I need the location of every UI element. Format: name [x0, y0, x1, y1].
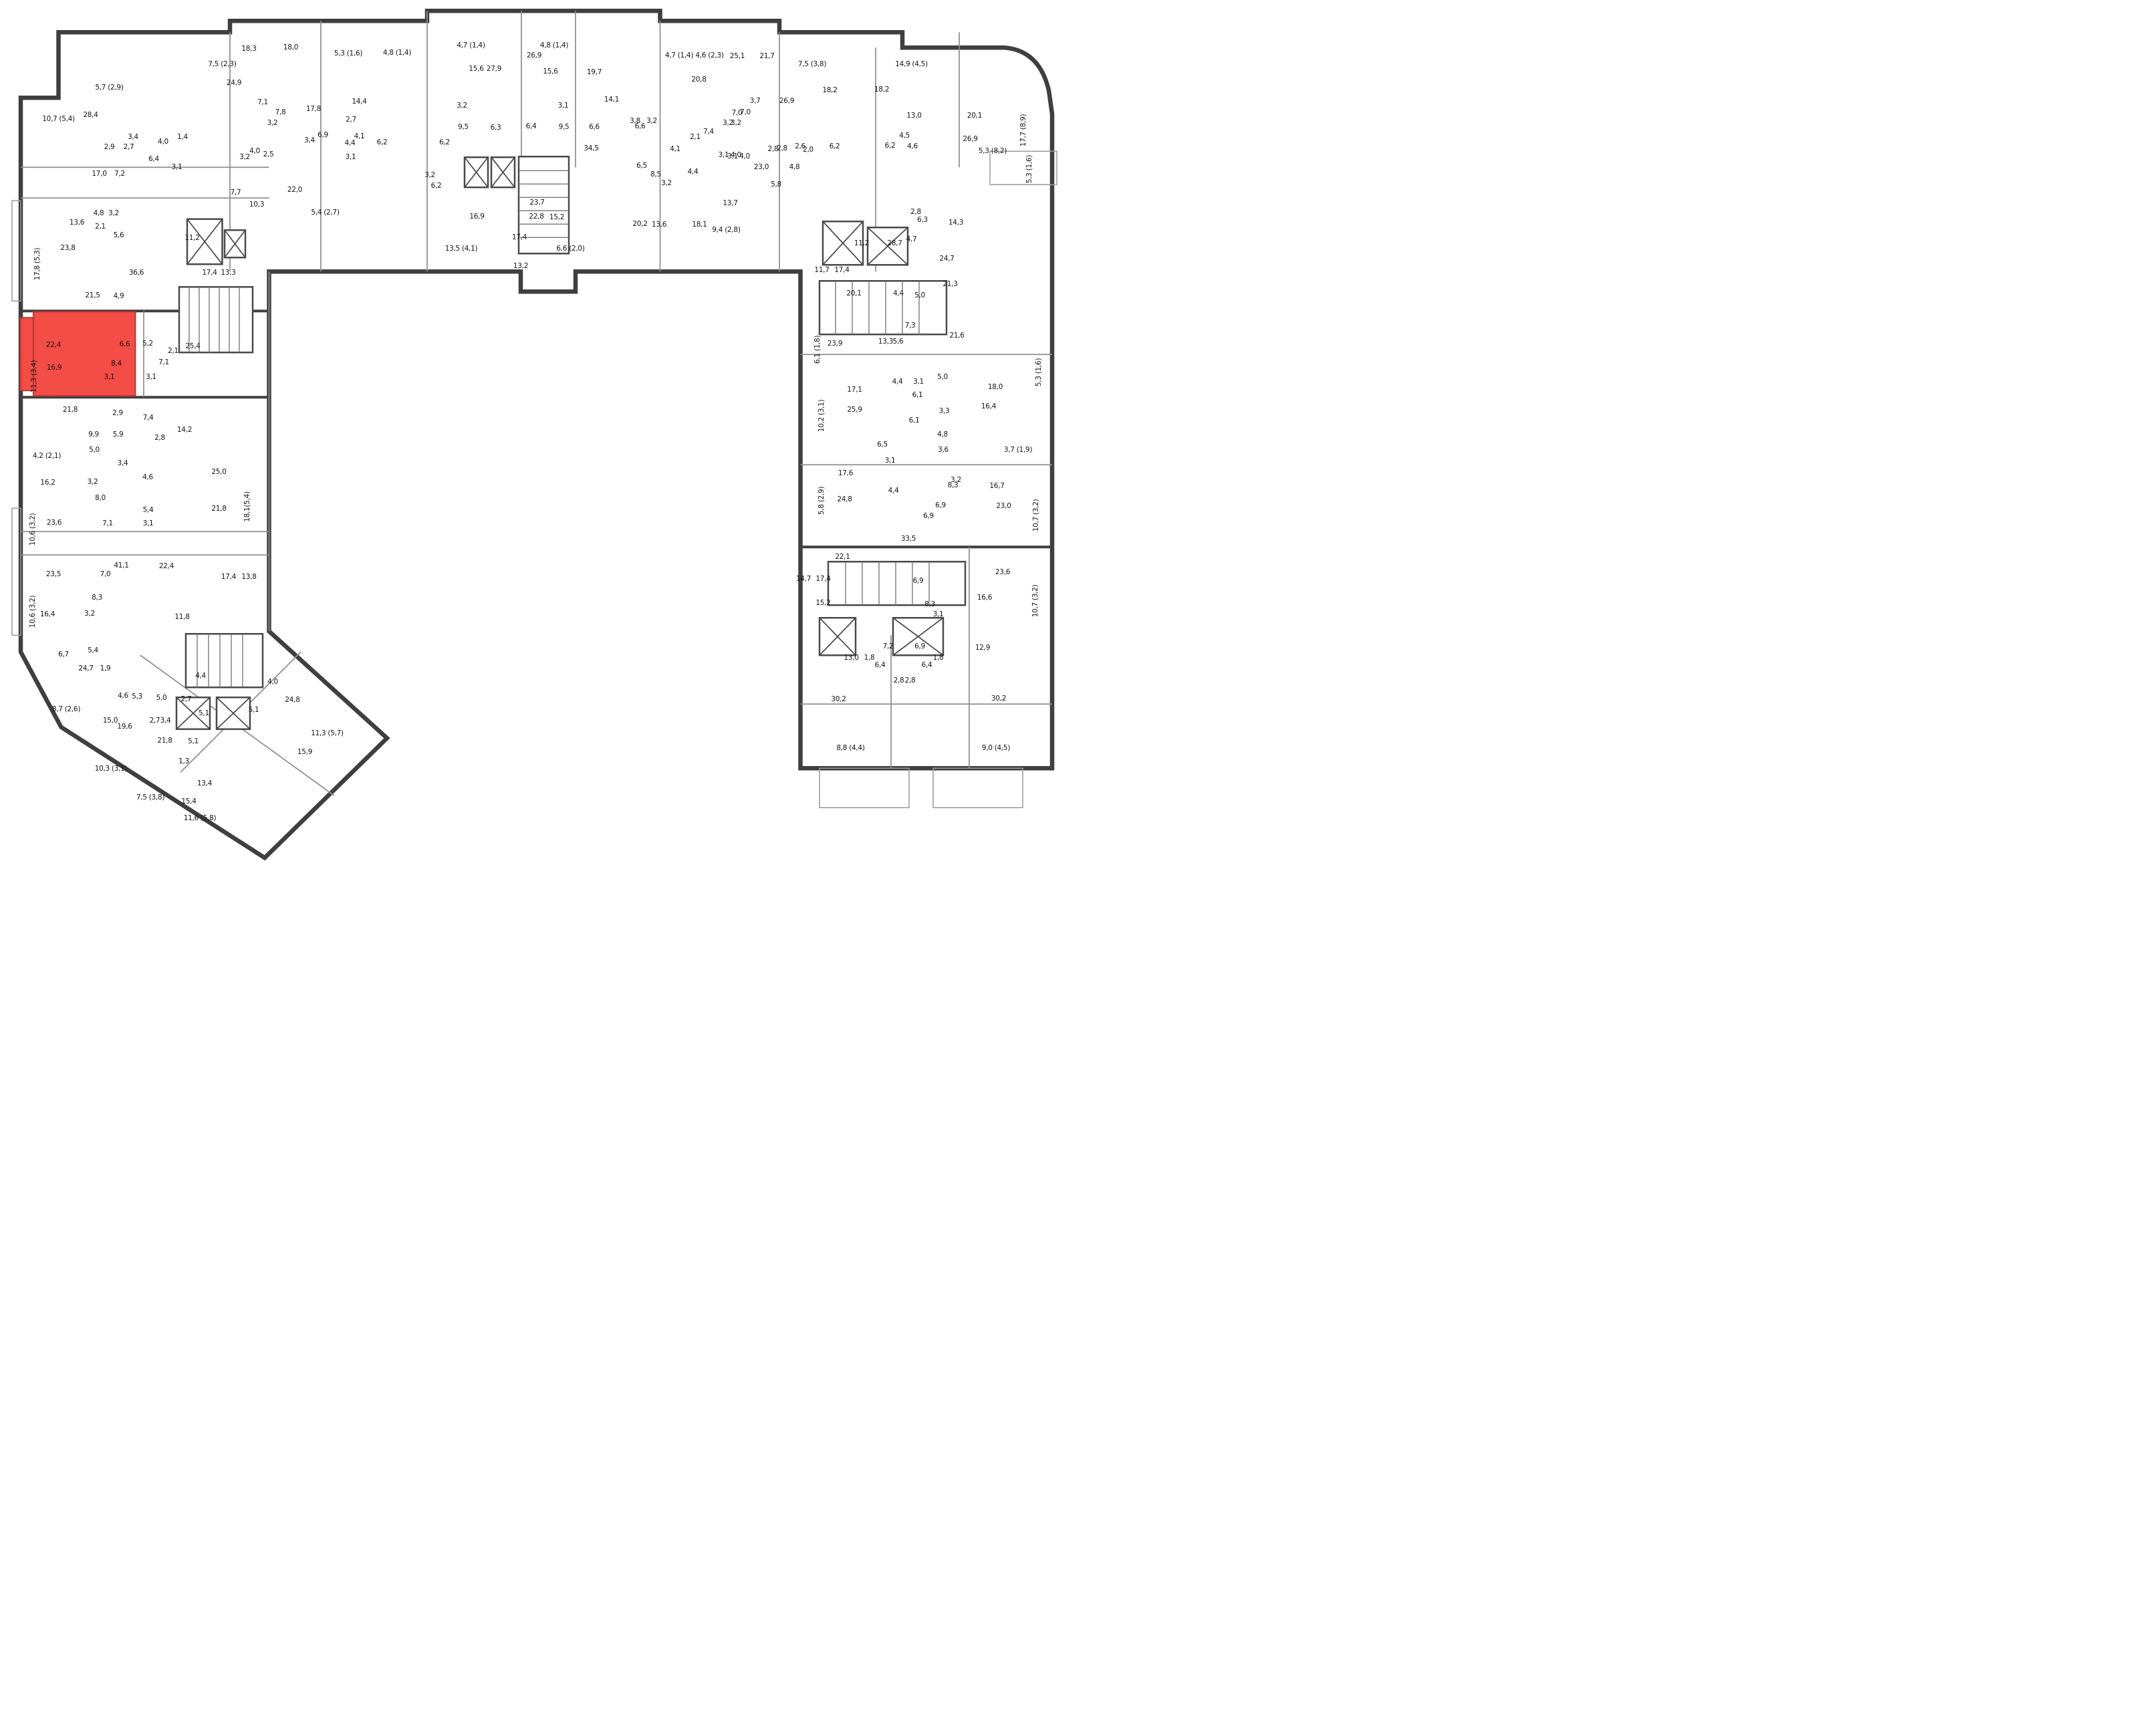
left-wing-core-lower: [176, 634, 263, 729]
highlighted-apartment[interactable]: [20, 312, 136, 396]
highlighted-apartment-body[interactable]: [33, 312, 136, 396]
highlighted-apartment-balcony: [20, 318, 33, 390]
building-outline: [21, 11, 1052, 858]
floorplan-structure: [0, 0, 1069, 868]
balcony-bottom-right-2: [933, 768, 1023, 808]
floor-plan: 10,7 (5,4)28,45,7 (2,9)3,46,43,12,92,74,…: [0, 0, 1069, 868]
balcony-bottom-right-1: [820, 768, 909, 808]
